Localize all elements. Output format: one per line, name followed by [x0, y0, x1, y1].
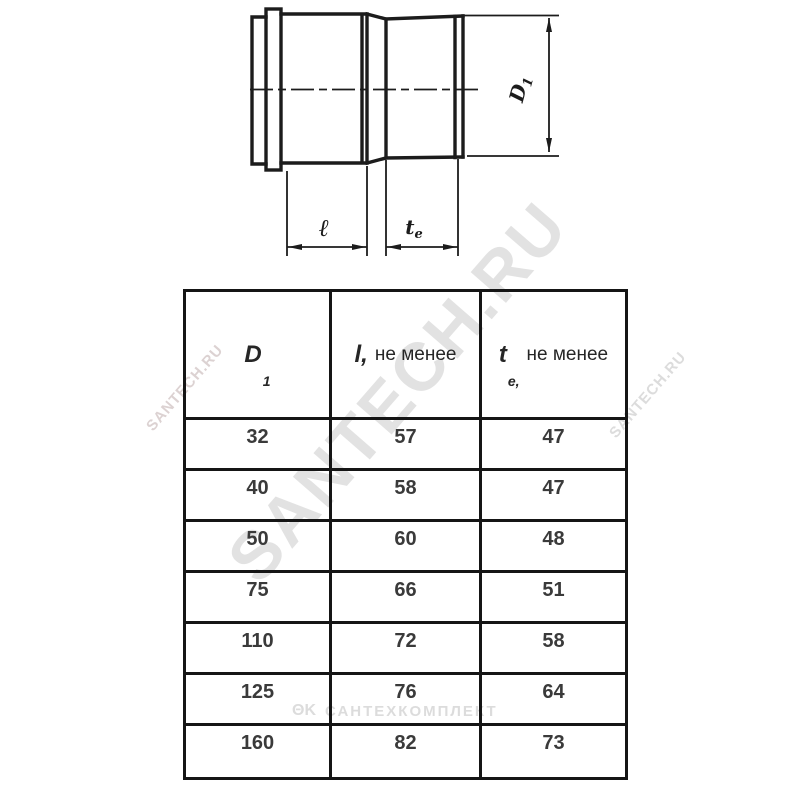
- table-cell-d1: 125: [186, 675, 332, 726]
- header-symbol: D: [244, 341, 261, 369]
- table-cell-l: 72: [332, 624, 482, 675]
- table-cell-d1: 75: [186, 573, 332, 624]
- dimension-l: [287, 166, 367, 256]
- table-cell-l: 58: [332, 471, 482, 522]
- column-header-d1: D1: [186, 292, 332, 420]
- table-cell-l: 76: [332, 675, 482, 726]
- header-subscript: e,: [508, 373, 520, 389]
- product-spec-image: { "drawing": { "label_l": "ℓ", "label_te…: [0, 0, 800, 800]
- table-cell-te: 58: [482, 624, 625, 675]
- table-cell-te: 47: [482, 471, 625, 522]
- dimension-label-d1: D1: [504, 73, 537, 106]
- table-cell-te: 48: [482, 522, 625, 573]
- table-cell-l: 82: [332, 726, 482, 777]
- table-cell-te: 64: [482, 675, 625, 726]
- table-cell-l: 60: [332, 522, 482, 573]
- table-cell-d1: 40: [186, 471, 332, 522]
- column-header-l: l,не менее: [332, 292, 482, 420]
- dimension-label-te: te: [405, 215, 423, 242]
- table-cell-te: 73: [482, 726, 625, 777]
- header-symbol: t: [499, 341, 507, 369]
- dimension-label-l: ℓ: [319, 213, 329, 242]
- table-cell-l: 66: [332, 573, 482, 624]
- column-header-te: te,не менее: [482, 292, 625, 420]
- table-cell-te: 47: [482, 420, 625, 471]
- table-cell-d1: 32: [186, 420, 332, 471]
- header-qualifier: не менее: [527, 344, 609, 366]
- header-symbol: l,: [355, 341, 368, 369]
- table-cell-d1: 50: [186, 522, 332, 573]
- table-cell-d1: 110: [186, 624, 332, 675]
- table-cell-te: 51: [482, 573, 625, 624]
- technical-drawing: ℓ te D1: [0, 0, 800, 280]
- table-cell-l: 57: [332, 420, 482, 471]
- header-qualifier: не менее: [375, 344, 457, 366]
- header-subscript: 1: [263, 373, 271, 389]
- table-cell-d1: 160: [186, 726, 332, 777]
- dimensions-table: D1 l,не менее te,не менее 32 57 47 40 58…: [183, 289, 628, 780]
